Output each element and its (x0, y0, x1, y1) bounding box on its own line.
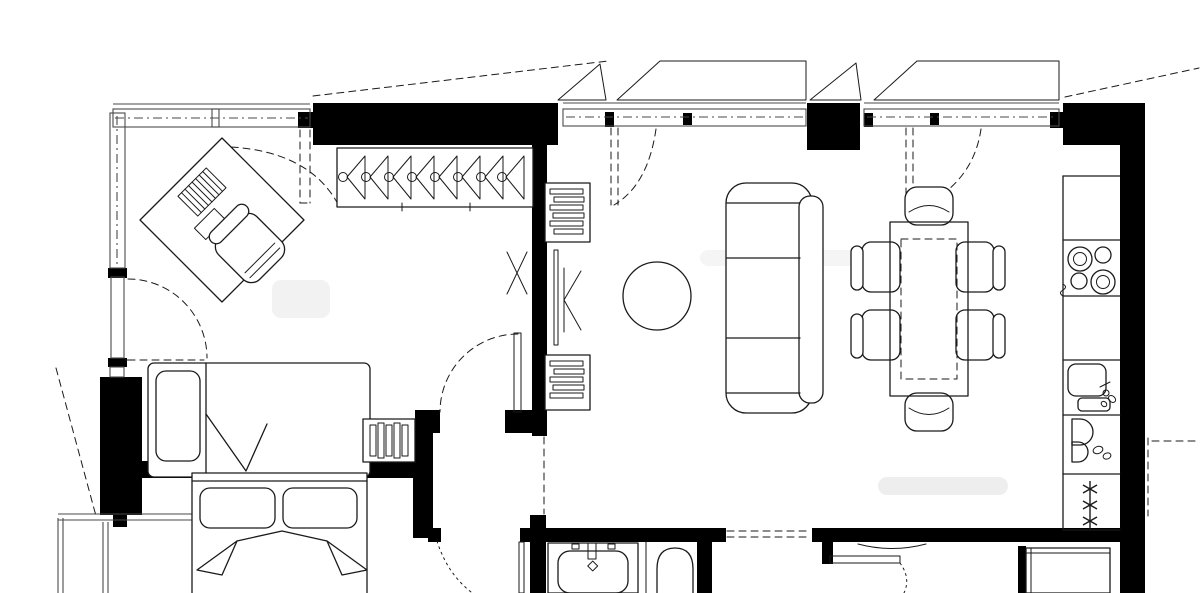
radiator-nightstand (363, 419, 415, 462)
dining-chair-bottom (905, 393, 953, 431)
pillow (200, 488, 275, 528)
desk-rotated (140, 138, 304, 302)
open-window-wedge-left (558, 64, 606, 100)
bathroom-fixtures (548, 542, 693, 593)
bedroom-door-leaf (514, 333, 521, 412)
open-window-leaf-b (874, 61, 1059, 100)
dining-chair-left-1 (862, 242, 900, 292)
bedroom-door-swing (440, 334, 518, 412)
dining-chair-left-2 (862, 310, 900, 360)
wc-door-leaf (830, 556, 900, 563)
pillow (156, 371, 200, 461)
kitchen-counter (1061, 176, 1121, 530)
dining-set (851, 187, 1005, 431)
dining-chair-right-1 (956, 242, 994, 292)
floor-plan-canvas (0, 0, 1200, 593)
round-side-table (623, 262, 691, 330)
eave-line-left (313, 61, 608, 96)
sofa-backrest (799, 196, 823, 403)
open-window-leaf-a (617, 61, 806, 100)
freezer-snowflakes-icon (1083, 481, 1097, 529)
balcony-door-swing (128, 279, 207, 358)
bay-angle-line (56, 368, 96, 516)
washbasin-icon (548, 543, 638, 593)
sofa (726, 183, 823, 413)
bedroom2-door-swing (437, 541, 471, 592)
bathtub-icon (657, 548, 693, 593)
dining-chair-right-2 (956, 310, 994, 360)
kitchen-sink-icon (1068, 364, 1117, 411)
open-window-wedge-mid (810, 63, 861, 100)
hall-closet (1026, 548, 1110, 593)
bathroom-door-leaf (519, 542, 524, 593)
cooktop-icon (1061, 247, 1116, 296)
eave-line-right (1065, 68, 1199, 97)
double-bed (192, 473, 367, 593)
wardrobe-with-hangers (337, 148, 533, 211)
wash-unit-icon (1072, 419, 1112, 462)
shelving-unit-top (545, 183, 590, 242)
wc-door-swing (900, 563, 907, 593)
single-bed (148, 363, 370, 477)
balcony-door-leaf (111, 277, 124, 358)
floor-plan-drawing (0, 0, 1200, 593)
pillow (283, 488, 357, 528)
shelving-unit-bottom (545, 355, 590, 410)
